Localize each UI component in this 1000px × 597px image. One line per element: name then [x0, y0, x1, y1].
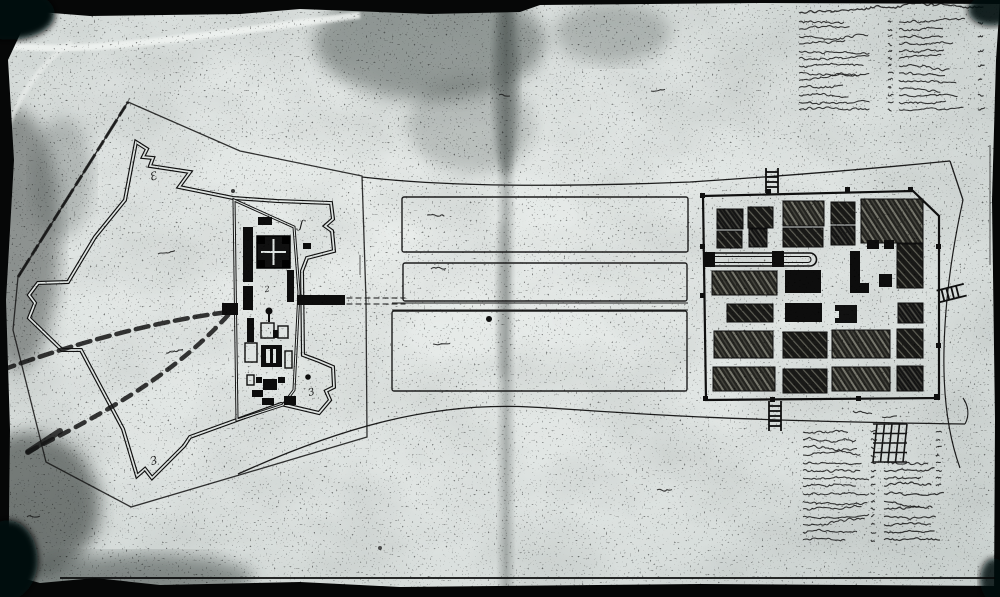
photo-grain [0, 0, 1000, 597]
scanned-map-photo: Ɛʃ23Ɛ [0, 0, 1000, 597]
map-canvas: Ɛʃ23Ɛ [0, 0, 1000, 597]
